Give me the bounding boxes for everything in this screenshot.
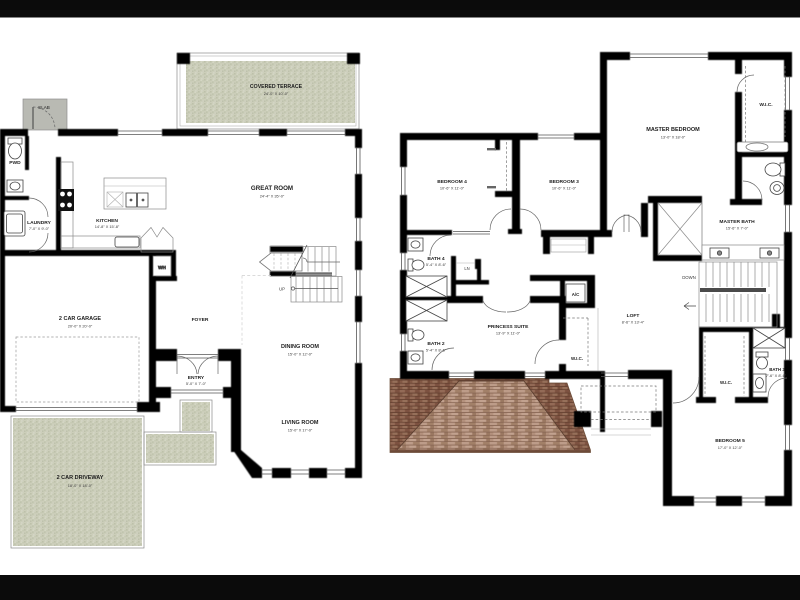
svg-text:W.I.C.: W.I.C. (720, 380, 732, 385)
svg-text:GREAT ROOM: GREAT ROOM (251, 185, 293, 192)
svg-text:18'-0" X 18'-0": 18'-0" X 18'-0" (68, 483, 93, 488)
svg-text:UP: UP (279, 287, 285, 292)
svg-text:SLAB: SLAB (38, 105, 50, 110)
svg-text:BEDROOM 3: BEDROOM 3 (549, 179, 579, 185)
svg-text:PRINCESS SUITE: PRINCESS SUITE (488, 324, 530, 330)
svg-text:DINING ROOM: DINING ROOM (281, 344, 319, 350)
svg-text:15'-0" X 12'-0": 15'-0" X 12'-0" (288, 352, 313, 357)
svg-text:LIVING ROOM: LIVING ROOM (282, 420, 319, 426)
svg-text:DOWN: DOWN (682, 275, 696, 280)
svg-text:10'-6" X 11'-0": 10'-6" X 11'-0" (440, 186, 465, 191)
svg-text:8'-6" X 13'-4": 8'-6" X 13'-4" (622, 320, 645, 325)
svg-text:7'-6" X 8'-6": 7'-6" X 8'-6" (766, 373, 787, 378)
svg-text:LOFT: LOFT (627, 313, 640, 319)
svg-text:MASTER BEDROOM: MASTER BEDROOM (646, 127, 700, 133)
svg-text:17'-0" X 12'-0": 17'-0" X 12'-0" (718, 445, 743, 450)
svg-text:5'-4" X 8'-6": 5'-4" X 8'-6" (426, 262, 447, 267)
svg-text:LN: LN (464, 266, 469, 271)
svg-text:20'-0" X 20'-0": 20'-0" X 20'-0" (68, 324, 93, 329)
svg-text:W.I.C.: W.I.C. (571, 356, 583, 361)
svg-text:10'-6" X 11'-0": 10'-6" X 11'-0" (552, 186, 577, 191)
svg-text:2 CAR DRIVEWAY: 2 CAR DRIVEWAY (57, 475, 104, 481)
svg-text:13'-0" X 18'-0": 13'-0" X 18'-0" (661, 135, 686, 140)
svg-text:5'-0" X 7'-0": 5'-0" X 7'-0" (186, 381, 207, 386)
svg-text:7'-0" X 9'-0": 7'-0" X 9'-0" (29, 226, 50, 231)
svg-text:5'-4" X 8'-6": 5'-4" X 8'-6" (426, 348, 447, 353)
svg-text:15'-6" X 7'-0": 15'-6" X 7'-0" (726, 226, 749, 231)
svg-text:14'-8" X 15'-8": 14'-8" X 15'-8" (95, 224, 120, 229)
svg-text:24'-4" X 35'-0": 24'-4" X 35'-0" (260, 194, 285, 199)
svg-text:15'-0" X 17'-0": 15'-0" X 17'-0" (288, 428, 313, 433)
svg-text:COVERED TERRACE: COVERED TERRACE (250, 84, 303, 90)
svg-text:BATH 2: BATH 2 (427, 341, 445, 347)
svg-text:MASTER BATH: MASTER BATH (719, 219, 755, 225)
svg-text:BATH 3: BATH 3 (769, 367, 785, 372)
svg-text:A/C: A/C (572, 292, 580, 297)
svg-text:W.I.C.: W.I.C. (759, 102, 773, 108)
svg-text:BEDROOM 5: BEDROOM 5 (715, 438, 745, 444)
svg-text:24'-0" X 10'-0": 24'-0" X 10'-0" (264, 91, 289, 96)
svg-text:BEDROOM 4: BEDROOM 4 (437, 179, 467, 185)
svg-text:13'-9" X 11'-0": 13'-9" X 11'-0" (496, 331, 521, 336)
svg-text:WH: WH (158, 265, 166, 270)
svg-text:PWD: PWD (9, 160, 21, 166)
svg-text:2 CAR GARAGE: 2 CAR GARAGE (59, 316, 102, 322)
svg-text:FOYER: FOYER (192, 317, 209, 323)
